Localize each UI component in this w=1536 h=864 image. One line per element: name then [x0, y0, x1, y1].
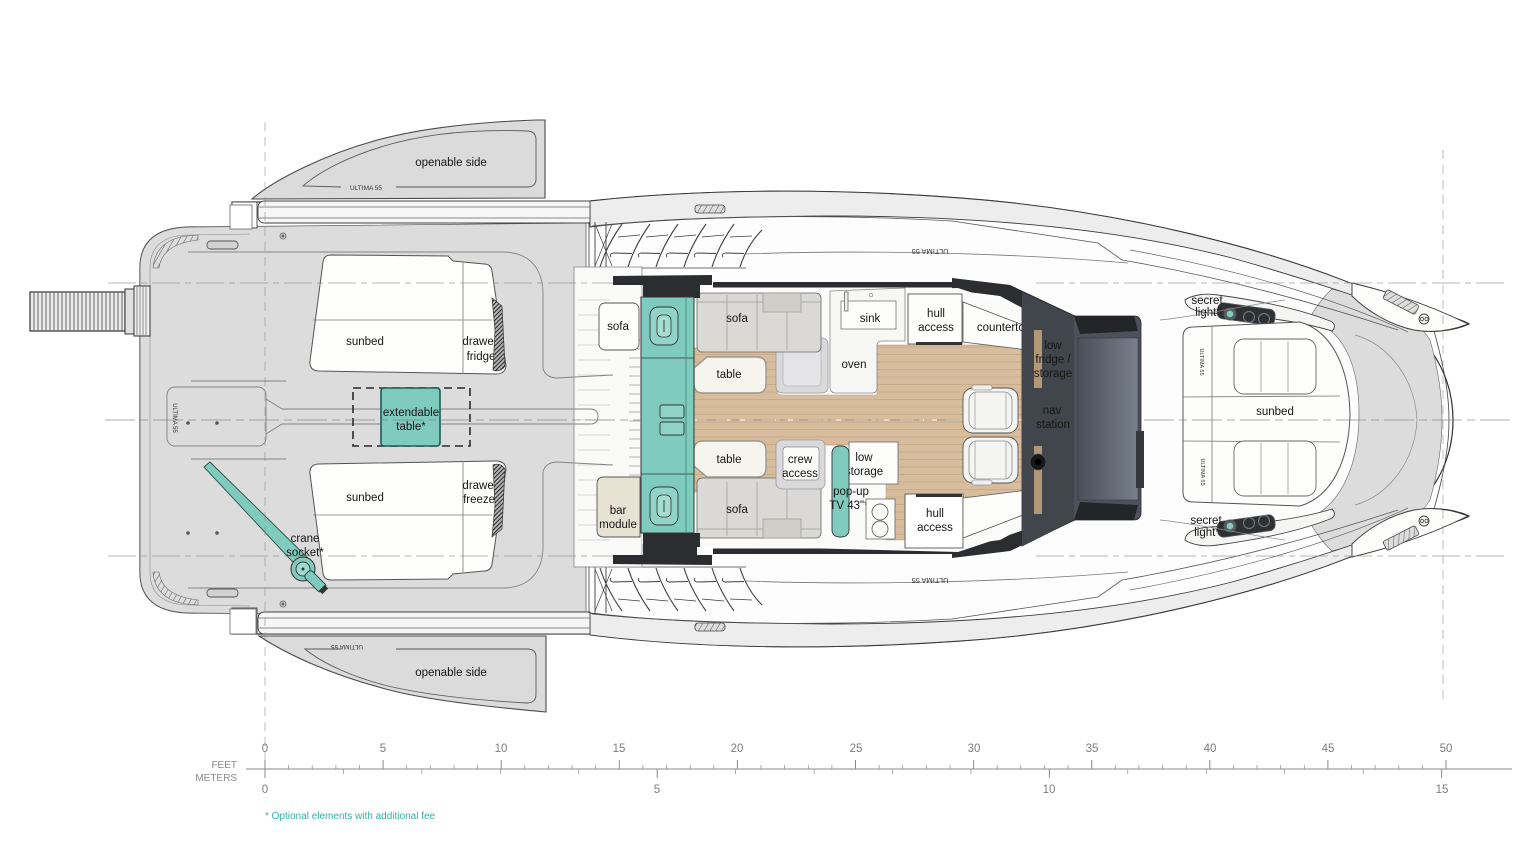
svg-text:extendable: extendable	[383, 407, 439, 419]
svg-text:0: 0	[262, 784, 268, 796]
svg-text:pop-up: pop-up	[833, 486, 869, 498]
svg-text:sink: sink	[860, 313, 881, 325]
svg-text:sunbed: sunbed	[1256, 406, 1294, 418]
svg-text:ULTIMA 55: ULTIMA 55	[912, 576, 949, 585]
svg-text:40: 40	[1204, 743, 1217, 755]
svg-text:low: low	[855, 452, 873, 464]
svg-text:crane: crane	[291, 533, 320, 545]
svg-text:low: low	[1044, 340, 1062, 352]
svg-text:sofa: sofa	[726, 504, 748, 516]
svg-text:20: 20	[731, 743, 744, 755]
svg-text:openable side: openable side	[415, 157, 487, 169]
svg-text:ULTIMA 55: ULTIMA 55	[1198, 348, 1204, 375]
svg-text:station: station	[1036, 419, 1070, 431]
svg-text:30: 30	[968, 743, 981, 755]
svg-text:15: 15	[613, 743, 626, 755]
svg-text:openable side: openable side	[415, 667, 487, 679]
svg-text:access: access	[918, 322, 954, 334]
svg-text:hull: hull	[926, 508, 944, 520]
svg-text:ULTIMA 55: ULTIMA 55	[171, 403, 177, 433]
svg-text:access: access	[917, 522, 953, 534]
svg-text:bar: bar	[610, 505, 627, 517]
svg-text:oven: oven	[842, 359, 867, 371]
svg-text:fridge /: fridge /	[1035, 354, 1071, 366]
svg-text:sunbed: sunbed	[346, 492, 384, 504]
svg-text:ULTIMA 55: ULTIMA 55	[331, 643, 363, 650]
svg-text:10: 10	[1043, 784, 1056, 796]
svg-text:TV 43"*: TV 43"*	[829, 500, 869, 512]
svg-text:0: 0	[262, 743, 268, 755]
svg-text:table: table	[717, 454, 742, 466]
svg-text:50: 50	[1440, 743, 1453, 755]
svg-text:15: 15	[1436, 784, 1449, 796]
svg-text:hull: hull	[927, 308, 945, 320]
svg-text:socket*: socket*	[286, 547, 324, 559]
svg-text:10: 10	[495, 743, 508, 755]
svg-text:secret: secret	[1191, 295, 1223, 307]
svg-text:* Optional elements with addi: * Optional elements with additional fee	[265, 811, 436, 822]
svg-text:5: 5	[654, 784, 660, 796]
svg-text:access: access	[782, 468, 818, 480]
svg-text:35: 35	[1086, 743, 1099, 755]
svg-text:table: table	[717, 369, 742, 381]
svg-text:sofa: sofa	[607, 321, 629, 333]
svg-text:crew: crew	[788, 454, 813, 466]
svg-text:nav: nav	[1043, 405, 1062, 417]
svg-text:drawer: drawer	[462, 480, 497, 492]
svg-text:ULTIMA 55: ULTIMA 55	[1199, 458, 1205, 485]
svg-text:module: module	[599, 519, 637, 531]
svg-text:drawer: drawer	[462, 336, 497, 348]
svg-text:table*: table*	[396, 421, 426, 433]
svg-text:25: 25	[850, 743, 863, 755]
svg-text:storage: storage	[1034, 368, 1072, 380]
svg-text:ULTIMA 55: ULTIMA 55	[350, 185, 382, 192]
svg-text:ULTIMA 55: ULTIMA 55	[912, 247, 949, 256]
svg-text:FEET: FEET	[211, 760, 237, 771]
svg-text:fridge: fridge	[467, 351, 496, 363]
svg-text:5: 5	[380, 743, 386, 755]
svg-text:45: 45	[1322, 743, 1335, 755]
svg-text:freezer: freezer	[463, 494, 499, 506]
svg-text:METERS: METERS	[195, 773, 237, 784]
svg-text:sofa: sofa	[726, 313, 748, 325]
svg-text:storage: storage	[845, 466, 883, 478]
svg-text:sunbed: sunbed	[346, 336, 384, 348]
